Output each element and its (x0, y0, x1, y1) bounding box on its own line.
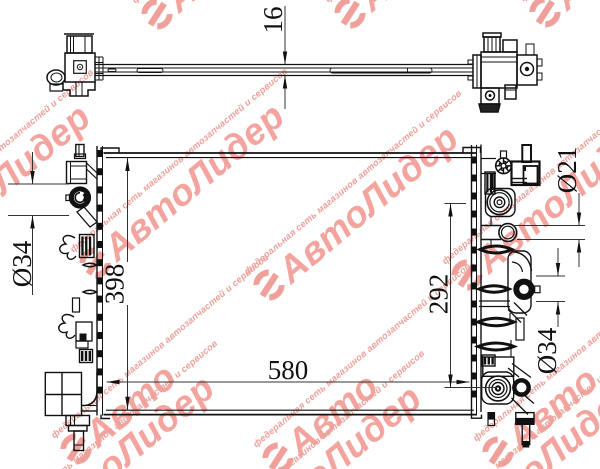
svg-text:398: 398 (100, 264, 130, 305)
svg-text:Ø34: Ø34 (7, 240, 37, 287)
svg-text:580: 580 (268, 355, 309, 385)
svg-text:Ø34: Ø34 (532, 327, 562, 374)
svg-text:16: 16 (258, 7, 288, 34)
svg-text:292: 292 (424, 274, 454, 315)
svg-text:Ø21: Ø21 (552, 147, 582, 194)
